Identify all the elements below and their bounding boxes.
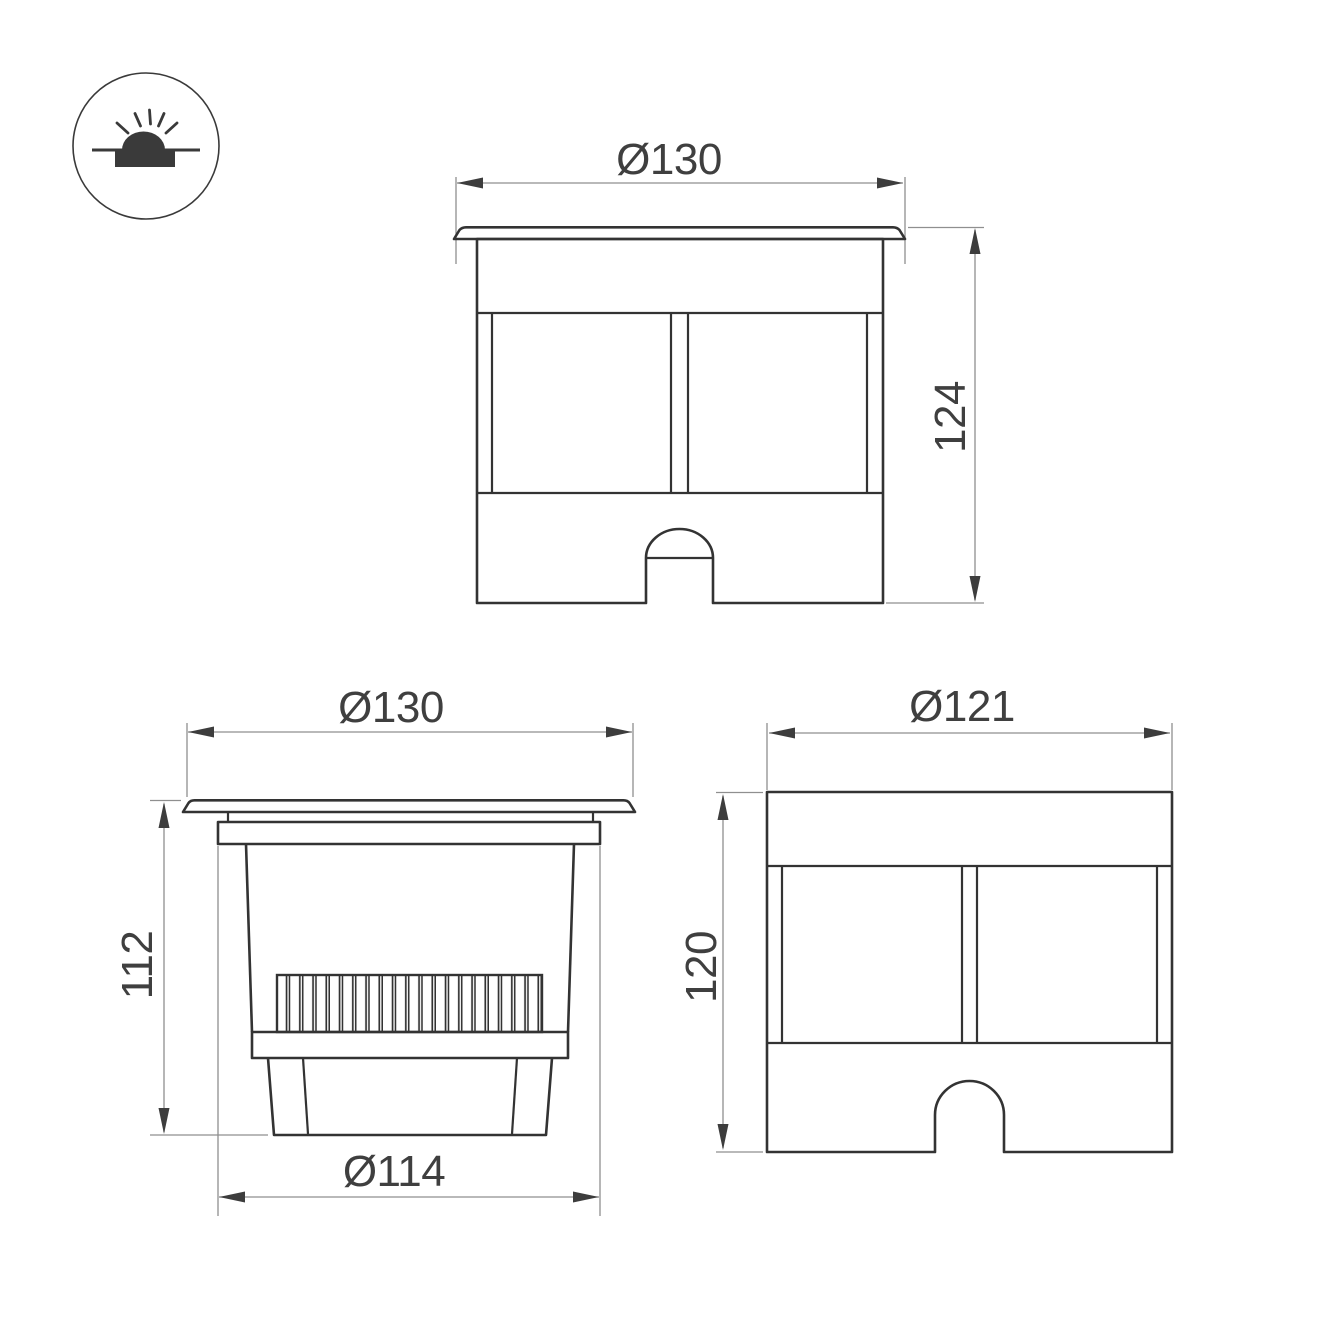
dim-label-total-height: 124: [926, 381, 975, 453]
arrowhead: [718, 1124, 729, 1150]
arrowhead: [769, 728, 795, 739]
dimensions-front-without-flange: Ø121 120: [677, 682, 1172, 1152]
view-front-without-flange: Ø121 120: [677, 682, 1172, 1152]
flange-profile: [454, 227, 905, 239]
bottom-cup-outline: [268, 1058, 552, 1135]
arrowhead: [159, 802, 170, 828]
dimensions-front-with-flange: Ø130 124: [456, 135, 984, 603]
driver-plate: [252, 1032, 568, 1058]
arrowhead: [718, 794, 729, 820]
dim-label-recessed-depth: 112: [113, 931, 162, 1000]
heatsink-fins: [277, 975, 542, 1032]
icon-luminaire-body: [115, 150, 175, 167]
arrowhead: [970, 228, 981, 254]
arrowhead: [219, 1192, 245, 1203]
dim-label-body-diameter: Ø121: [909, 682, 1015, 731]
flange-profile-side: [183, 800, 635, 812]
icon-light-rays: [117, 110, 177, 133]
dim-label-sleeve-diameter: Ø114: [343, 1147, 445, 1196]
mounting-ring: [218, 822, 600, 844]
arrowhead: [1144, 728, 1170, 739]
dim-label-flange-diameter: Ø130: [616, 135, 722, 184]
arrowhead: [188, 727, 214, 738]
bottom-cup-inner-left-line: [303, 1058, 308, 1134]
housing-outline: [477, 239, 883, 603]
body-wall-right: [568, 844, 574, 1032]
recessed-ground-light-icon: [73, 73, 219, 219]
view-front-with-flange: Ø130 124: [454, 135, 984, 603]
view-side-profile: Ø130 112 Ø114: [113, 683, 635, 1216]
arrowhead: [877, 178, 903, 189]
drawing-svg: Ø130 124: [0, 0, 1331, 1331]
dim-label-flange-diameter-side: Ø130: [338, 683, 444, 732]
body-wall-left: [246, 844, 252, 1032]
dim-label-body-height: 120: [677, 931, 726, 1003]
arrowhead: [159, 1108, 170, 1134]
arrowhead: [457, 178, 483, 189]
arrowhead: [573, 1192, 599, 1203]
arrowhead: [606, 727, 632, 738]
body-outline-no-flange: [767, 792, 1172, 1152]
technical-drawing-canvas: Ø130 124: [0, 0, 1331, 1331]
arrowhead: [970, 576, 981, 602]
bottom-cup-inner-right-line: [512, 1058, 517, 1134]
